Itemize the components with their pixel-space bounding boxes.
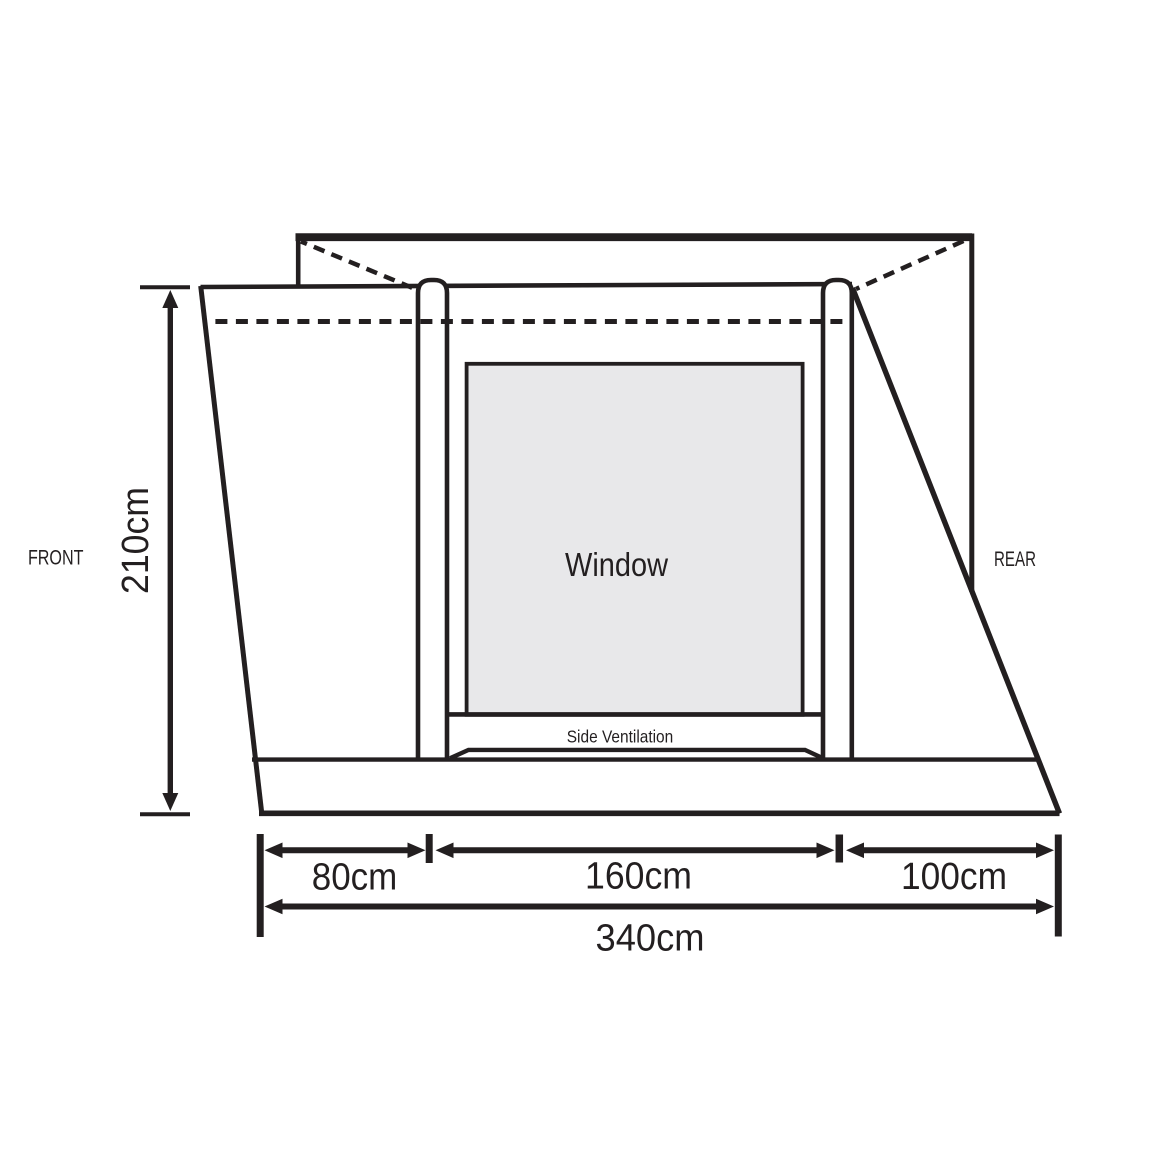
- svg-text:Window: Window: [565, 546, 668, 583]
- svg-text:REAR: REAR: [994, 548, 1036, 571]
- svg-text:100cm: 100cm: [901, 856, 1007, 898]
- svg-text:Side Ventilation: Side Ventilation: [567, 727, 674, 747]
- svg-text:160cm: 160cm: [585, 856, 692, 898]
- svg-text:340cm: 340cm: [596, 918, 705, 960]
- svg-text:80cm: 80cm: [312, 857, 398, 899]
- svg-text:210cm: 210cm: [115, 487, 157, 594]
- svg-text:FRONT: FRONT: [28, 546, 84, 569]
